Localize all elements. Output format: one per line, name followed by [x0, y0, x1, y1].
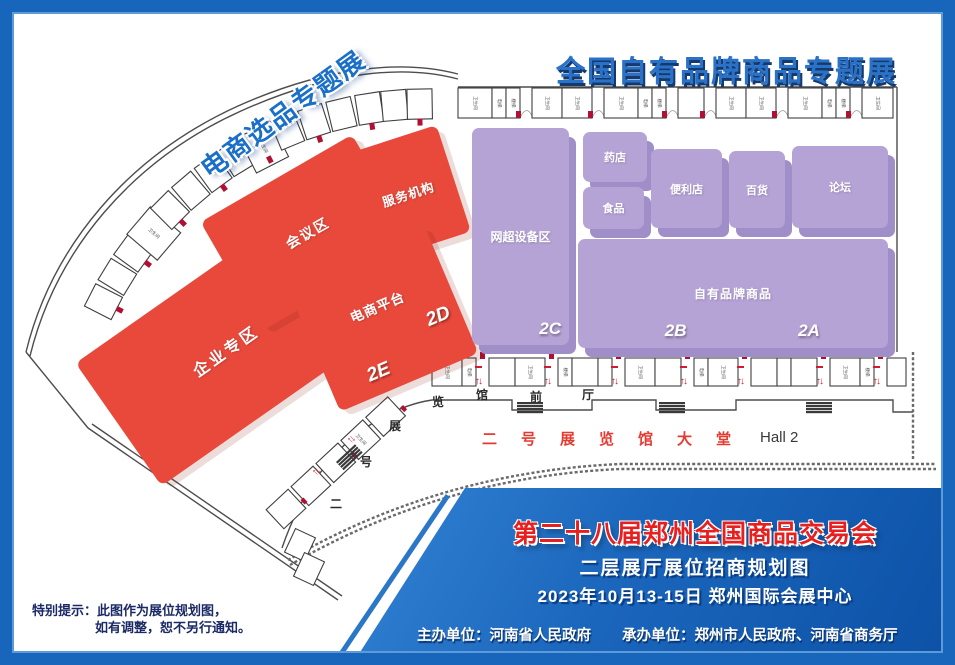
- note-label: 特别提示：: [32, 603, 97, 618]
- bottom-booth-row: 卫生间电梯↑↓卫生间↑↓楼梯↑↓卫生间↑↓电梯卫生间↑↓↑↓卫生间楼梯↑↓: [432, 352, 906, 387]
- svg-text:卫生间: 卫生间: [574, 96, 581, 110]
- svg-text:卫生间: 卫生间: [637, 365, 644, 379]
- zone-drugstore: 药店: [583, 132, 647, 182]
- zone-drugstore-label: 药店: [604, 149, 626, 165]
- host-unit: 主办单位：河南省人民政府: [417, 624, 591, 645]
- front-hall-char: 号: [360, 453, 372, 470]
- svg-text:↑↓: ↑↓: [680, 376, 687, 387]
- front-hall-char: 馆: [476, 386, 488, 403]
- zone-netmarket: 网超设备区 2C: [472, 128, 569, 345]
- diagonal-booth-row: 卫生间↑↓↑↓: [266, 397, 407, 586]
- front-hall-char: 展: [389, 417, 401, 434]
- zone-forum-label: 论坛: [829, 179, 851, 195]
- front-hall-char: 览: [432, 393, 444, 410]
- main-title: 全国自有品牌商品专题展: [556, 48, 897, 90]
- fair-subtitle: 二层展厅展位招商规划图: [455, 553, 935, 580]
- note-line2: 如有调整，恕不另行通知。: [32, 619, 251, 636]
- lobby-label: 二号展览馆大堂: [482, 428, 755, 449]
- zone-ecommerce-label: 电商平台: [346, 285, 407, 326]
- front-hall-char: 厅: [582, 386, 594, 403]
- svg-text:电梯: 电梯: [642, 99, 649, 108]
- svg-text:楼梯: 楼梯: [840, 99, 847, 108]
- zone-forum: 论坛: [792, 146, 888, 228]
- svg-text:卫生间: 卫生间: [472, 96, 479, 110]
- zone-food-label: 食品: [603, 200, 625, 216]
- svg-text:卫生间: 卫生间: [842, 365, 849, 379]
- svg-text:电梯: 电梯: [466, 368, 473, 377]
- svg-text:卫生间: 卫生间: [758, 96, 765, 110]
- zone-private-label-code-2b: 2B: [665, 321, 687, 341]
- zone-netmarket-code: 2C: [539, 319, 561, 339]
- svg-text:楼梯: 楼梯: [656, 99, 663, 108]
- svg-text:卫生间: 卫生间: [527, 365, 534, 379]
- zone-department-label: 百货: [746, 182, 768, 198]
- fair-date-venue: 2023年10月13-15日 郑州国际会展中心: [455, 582, 935, 607]
- svg-text:↑↓: ↑↓: [816, 376, 823, 387]
- zone-convenience-label: 便利店: [670, 181, 703, 197]
- front-hall-char: 二: [330, 495, 342, 512]
- zone-netmarket-label: 网超设备区: [490, 228, 550, 245]
- svg-text:楼梯: 楼梯: [562, 368, 569, 377]
- organizer-unit: 承办单位：郑州市人民政府、河南省商务厅: [622, 624, 898, 645]
- special-note: 特别提示：此图作为展位规划图， 如有调整，恕不另行通知。: [32, 602, 251, 636]
- svg-text:电梯: 电梯: [698, 368, 705, 377]
- zone-convenience: 便利店: [651, 149, 722, 228]
- zone-private-label-label: 自有品牌商品: [694, 285, 772, 302]
- svg-text:卫生间: 卫生间: [618, 96, 625, 110]
- fair-title: 第二十八届郑州全国商品交易会: [455, 514, 935, 550]
- svg-text:电梯: 电梯: [826, 99, 833, 108]
- zone-enterprise-label: 企业专区: [187, 318, 263, 381]
- svg-text:卫生间: 卫生间: [544, 96, 551, 110]
- zone-ecommerce-code-2e: 2E: [364, 358, 394, 387]
- svg-text:楼梯: 楼梯: [510, 99, 517, 108]
- svg-text:卫生间: 卫生间: [720, 365, 727, 379]
- zone-private-label: 自有品牌商品 2B 2A: [578, 239, 888, 348]
- zone-department: 百货: [729, 151, 785, 228]
- svg-text:电梯: 电梯: [496, 99, 503, 108]
- svg-text:卫生间: 卫生间: [728, 96, 735, 110]
- front-hall-char: 前: [530, 388, 542, 405]
- svg-text:卫生间: 卫生间: [802, 96, 809, 110]
- zone-ecommerce-code-2d: 2D: [423, 302, 454, 332]
- top-booth-row: 卫生间电梯楼梯卫生间卫生间卫生间电梯楼梯卫生间卫生间卫生间电梯楼梯卫生间: [458, 88, 893, 118]
- zone-meeting-label: 会议区: [282, 212, 334, 253]
- zone-service-label: 服务机构: [379, 176, 436, 211]
- note-line1: 此图作为展位规划图，: [97, 603, 227, 618]
- floorplan-page: 卫生间电梯楼梯卫生间卫生间卫生间电梯楼梯卫生间卫生间卫生间电梯楼梯卫生间卫生间卫…: [0, 0, 955, 665]
- hall-2-label: Hall 2: [760, 429, 798, 446]
- svg-text:楼梯: 楼梯: [864, 368, 871, 377]
- zone-private-label-code-2a: 2A: [798, 321, 820, 341]
- svg-text:↑↓: ↑↓: [737, 376, 744, 387]
- svg-text:↑↓: ↑↓: [544, 376, 551, 387]
- zone-food: 食品: [583, 187, 644, 229]
- svg-text:↑↓: ↑↓: [873, 376, 880, 387]
- svg-text:卫生间: 卫生间: [874, 96, 881, 110]
- svg-text:↑↓: ↑↓: [611, 376, 618, 387]
